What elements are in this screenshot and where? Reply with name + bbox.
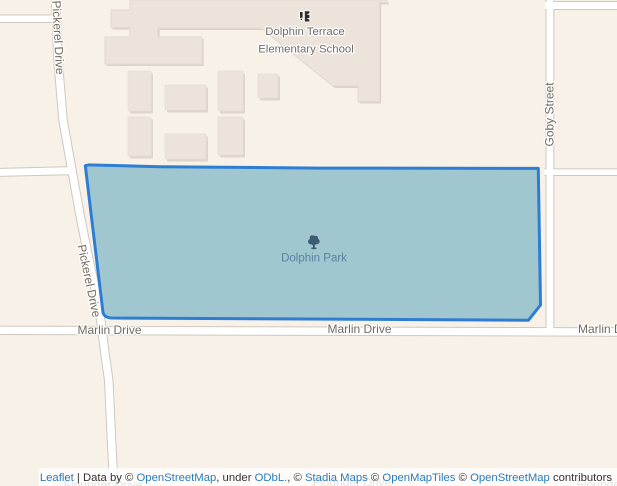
svg-text:Goby Street: Goby Street [542,82,556,147]
svg-text:Elementary School: Elementary School [258,43,354,55]
svg-text:Marlin Drive: Marlin Drive [578,322,617,336]
svg-text:Dolphin Park: Dolphin Park [281,252,347,264]
svg-text:Marlin Drive: Marlin Drive [328,322,392,336]
svg-text:Marlin Drive: Marlin Drive [78,323,142,337]
svg-text:Dolphin Terrace: Dolphin Terrace [265,26,345,38]
svg-text:Leaflet | Data by © OpenStreet: Leaflet | Data by © OpenStreetMap, under… [40,472,612,484]
